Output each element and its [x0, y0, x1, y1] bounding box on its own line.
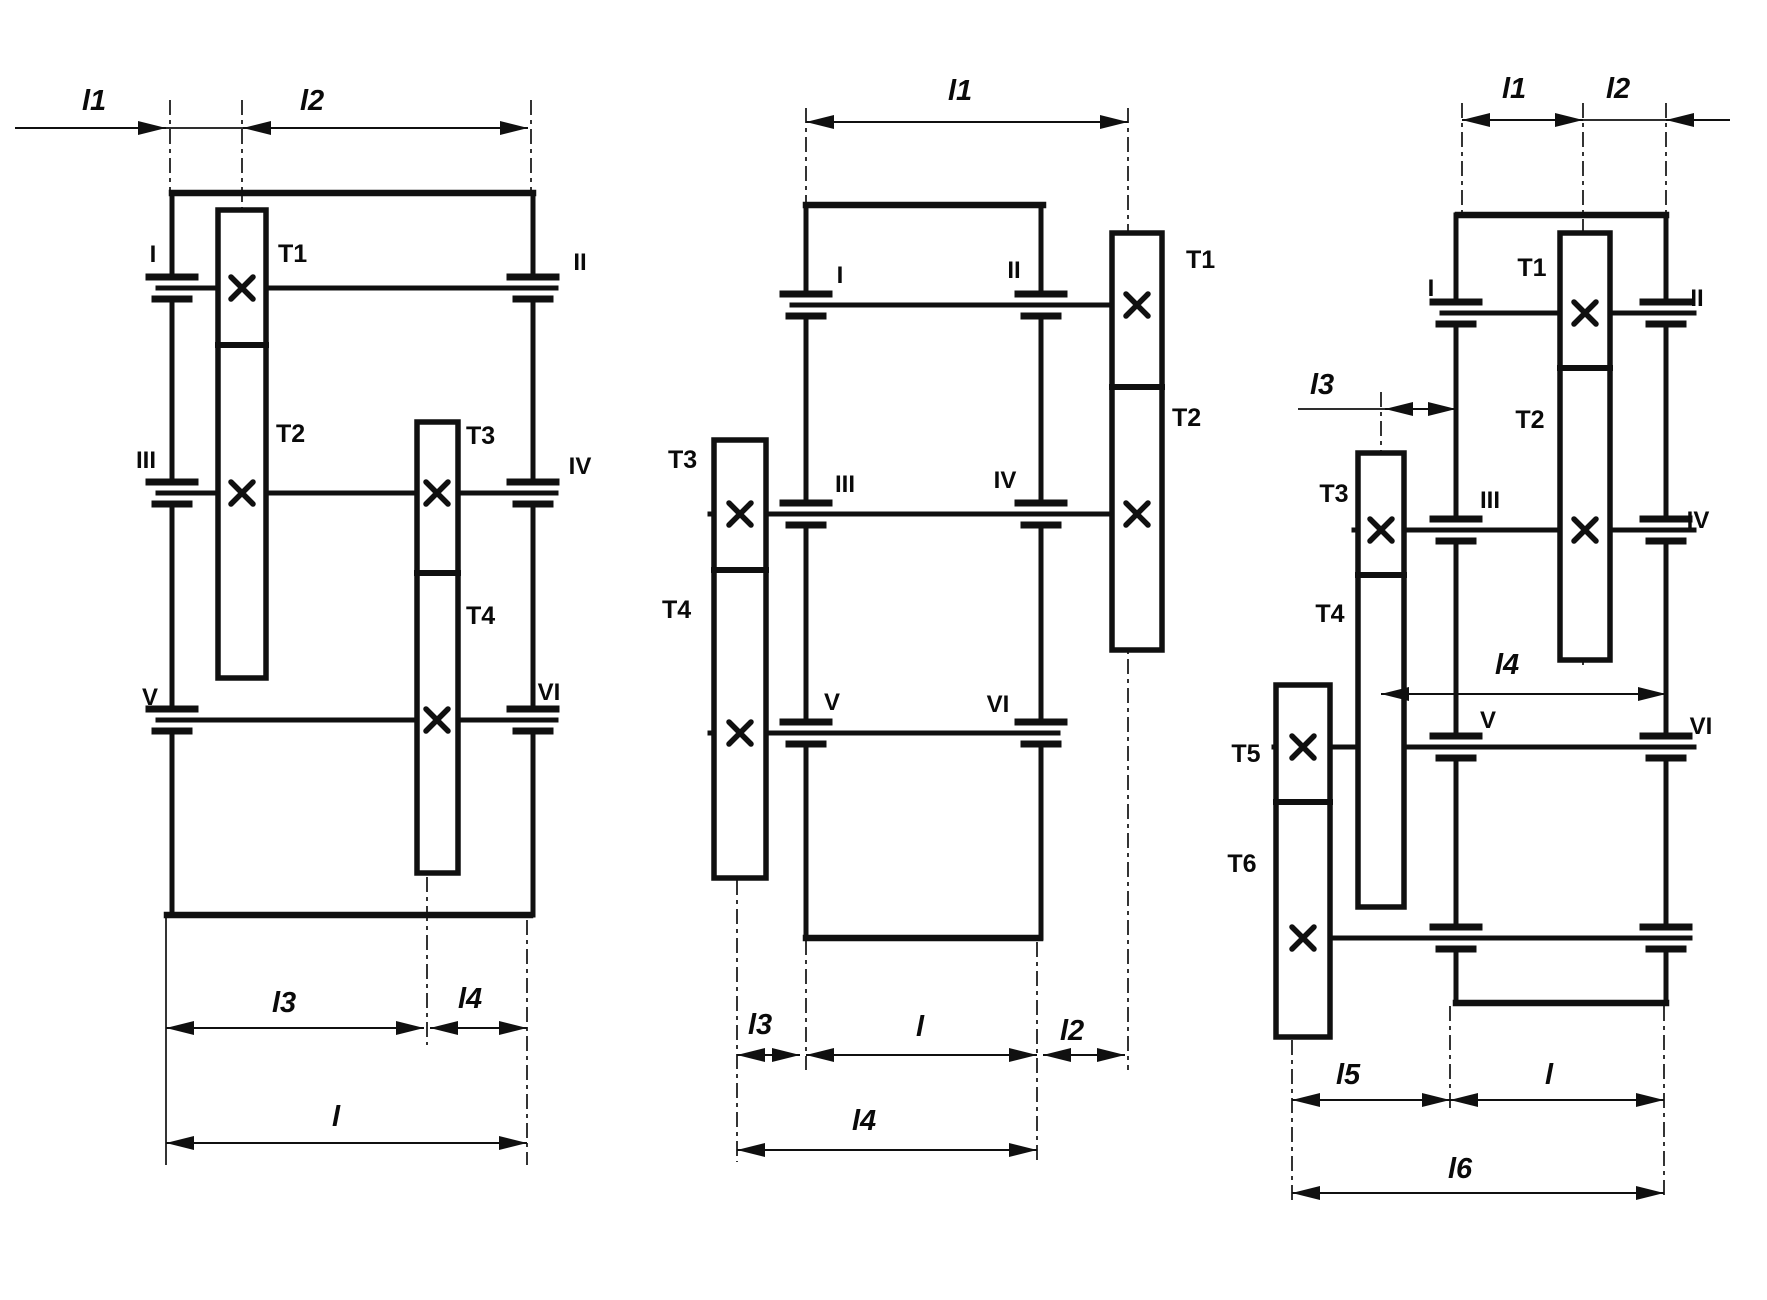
gear-block-t3-t4	[714, 440, 766, 878]
dim-label-l2: l2	[1606, 73, 1630, 105]
centerlines	[737, 108, 1128, 1162]
gear-label-t1: T1	[1186, 246, 1215, 274]
shaft-label-i: I	[1428, 275, 1435, 302]
dim-label-l1: l1	[82, 85, 106, 117]
dim-label-l: l	[916, 1011, 925, 1043]
gear-label-t2: T2	[276, 420, 305, 448]
dim-label-l1: l1	[948, 75, 972, 107]
dim-label-l1: l1	[1502, 73, 1526, 105]
housing-frame	[806, 205, 1043, 938]
dim-label-l3: l3	[1310, 369, 1334, 401]
gear-block-t5-t6	[1276, 685, 1330, 1037]
shaft-label-iii: III	[136, 447, 156, 474]
shaft-label-vi: VI	[538, 679, 561, 706]
gear-label-t6: T6	[1227, 850, 1256, 878]
shaft-label-ii: II	[1007, 257, 1020, 284]
dim-label-l3: l3	[272, 987, 296, 1019]
shaft-labels: I II III IV V VI	[824, 257, 1021, 718]
gear-label-t4: T4	[1315, 600, 1344, 628]
diagram-variant-3: l1 l2 l3 l4 l5 l l6 I II III IV V VI T1 …	[1227, 73, 1730, 1200]
gear-label-t3: T3	[1319, 480, 1348, 508]
gear-block	[1560, 233, 1610, 660]
shaft-label-v: V	[824, 689, 840, 716]
bearings	[149, 277, 556, 731]
gear-block	[714, 440, 766, 878]
shaft-label-iii: III	[1480, 487, 1500, 514]
shaft-label-v: V	[142, 684, 158, 711]
dim-label-l5: l5	[1336, 1059, 1361, 1091]
dim-label-l4: l4	[458, 983, 482, 1015]
gear-block-t3-t4	[417, 422, 458, 873]
shaft-label-iv: IV	[1687, 507, 1710, 534]
kinematic-schemes-figure: l1 l2 l3 l4 l I II III IV V VI T1 T2 T3 …	[0, 0, 1767, 1300]
dimension-labels: l1 l3 l l2 l4	[748, 75, 1084, 1137]
gear-block	[1358, 453, 1404, 907]
shaft-label-iii: III	[835, 471, 855, 498]
dim-label-l: l	[332, 1101, 341, 1133]
gear-label-t2: T2	[1515, 406, 1544, 434]
gear-block	[1112, 233, 1162, 650]
gear-label-t3: T3	[466, 422, 495, 450]
dim-label-l: l	[1545, 1059, 1554, 1091]
shaft-label-vi: VI	[1690, 713, 1713, 740]
shaft-label-vi: VI	[987, 691, 1010, 718]
shaft-labels: I II III IV V VI	[136, 241, 591, 711]
gear-label-t4: T4	[662, 596, 691, 624]
shaft-label-ii: II	[573, 249, 586, 276]
dim-label-l3: l3	[748, 1009, 772, 1041]
shaft-label-ii: II	[1690, 285, 1703, 312]
gear-block-t3-t4	[1358, 453, 1404, 907]
dimension-lines	[737, 122, 1128, 1150]
gear-label-t3: T3	[668, 446, 697, 474]
shaft-label-iv: IV	[569, 453, 592, 480]
bearings	[783, 294, 1064, 744]
shafts	[710, 305, 1162, 733]
diagram-variant-1: l1 l2 l3 l4 l I II III IV V VI T1 T2 T3 …	[15, 85, 591, 1165]
gear-label-t2: T2	[1172, 404, 1201, 432]
diagram-variant-2: l1 l3 l l2 l4 I II III IV V VI T3 T4 T1 …	[662, 75, 1215, 1162]
gear-block-t1-t2	[1560, 233, 1610, 660]
gear-label-t4: T4	[466, 602, 495, 630]
gear-block	[218, 210, 266, 678]
gear-label-t1: T1	[278, 240, 307, 268]
dim-label-l4: l4	[1495, 649, 1519, 681]
dim-label-l4: l4	[852, 1105, 876, 1137]
schemes-canvas: l1 l2 l3 l4 l I II III IV V VI T1 T2 T3 …	[0, 0, 1767, 1300]
dim-label-l6: l6	[1448, 1153, 1473, 1185]
dim-label-l2: l2	[300, 85, 324, 117]
gear-block-t1-t2	[218, 210, 266, 678]
gear-block	[1276, 685, 1330, 1037]
shaft-label-i: I	[837, 262, 844, 289]
gear-label-t1: T1	[1517, 254, 1546, 282]
gear-label-t5: T5	[1231, 740, 1260, 768]
dim-label-l2: l2	[1060, 1015, 1084, 1047]
shaft-label-iv: IV	[994, 467, 1017, 494]
shaft-label-i: I	[150, 241, 157, 268]
gear-block-t1-t2	[1112, 233, 1162, 650]
shaft-label-v: V	[1480, 707, 1496, 734]
gear-labels: T1 T2 T3 T4	[276, 240, 495, 630]
